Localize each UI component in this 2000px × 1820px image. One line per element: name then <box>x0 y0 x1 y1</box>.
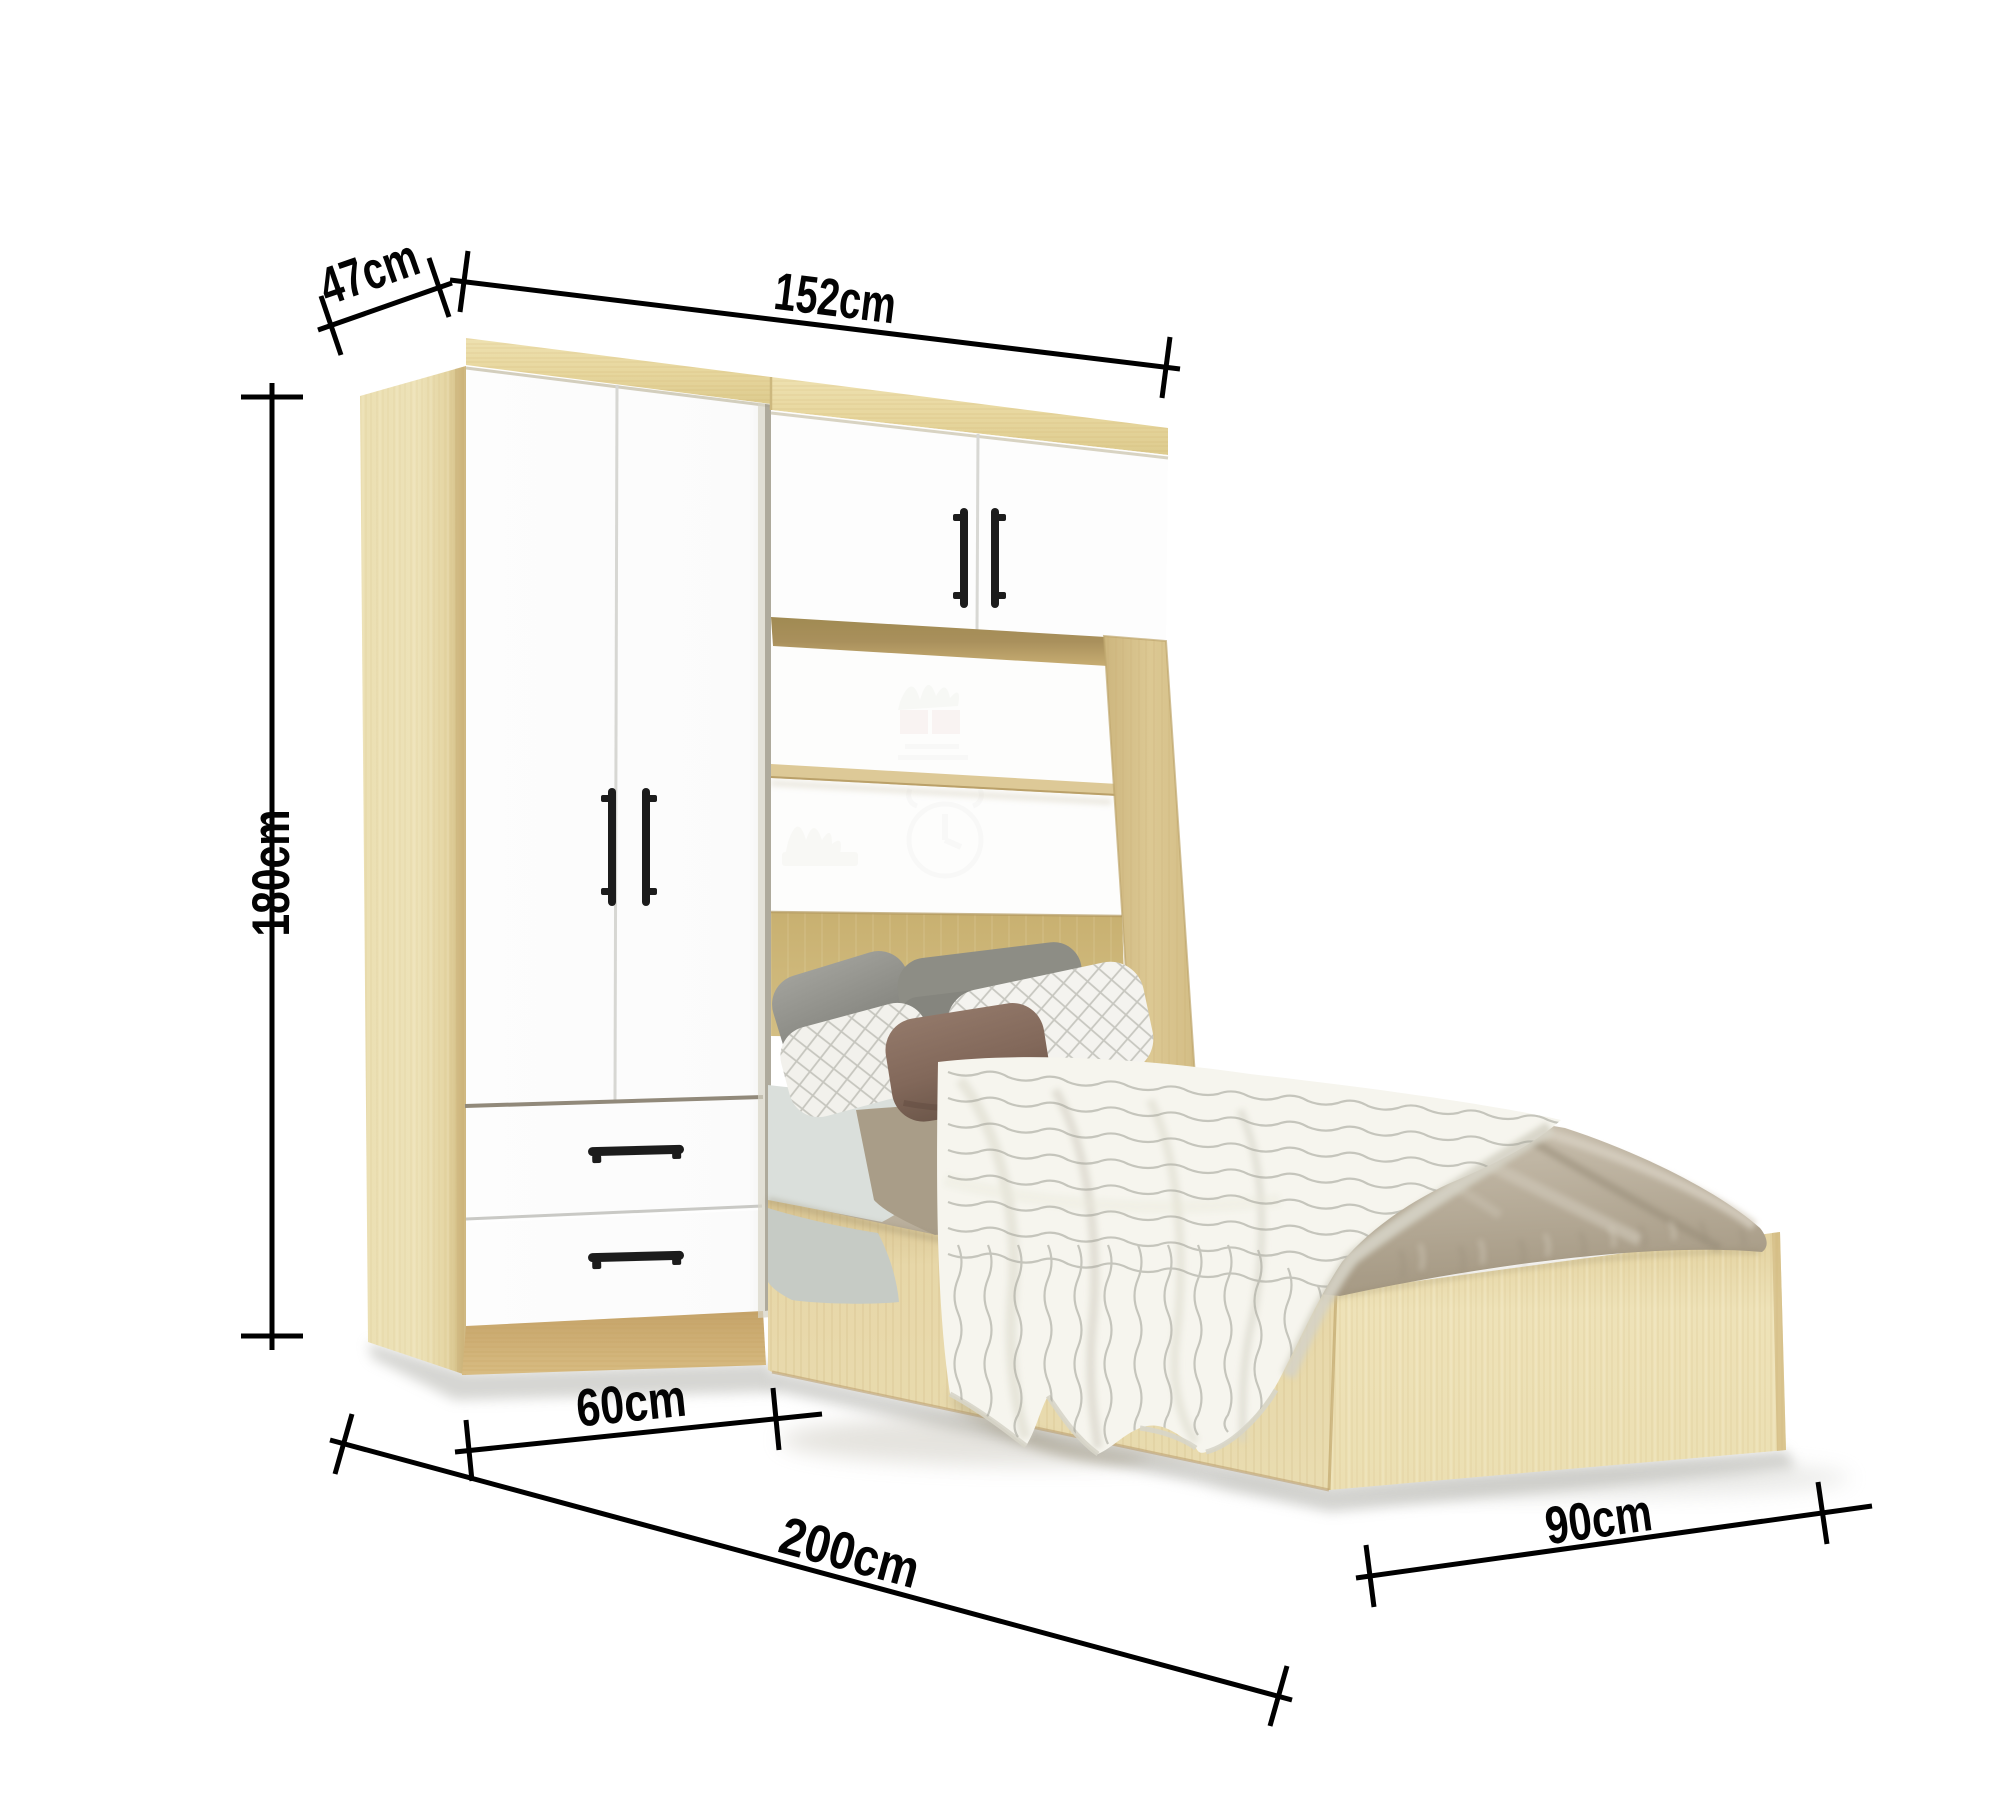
svg-text:60cm: 60cm <box>573 1369 688 1439</box>
svg-text:180cm: 180cm <box>242 810 301 937</box>
